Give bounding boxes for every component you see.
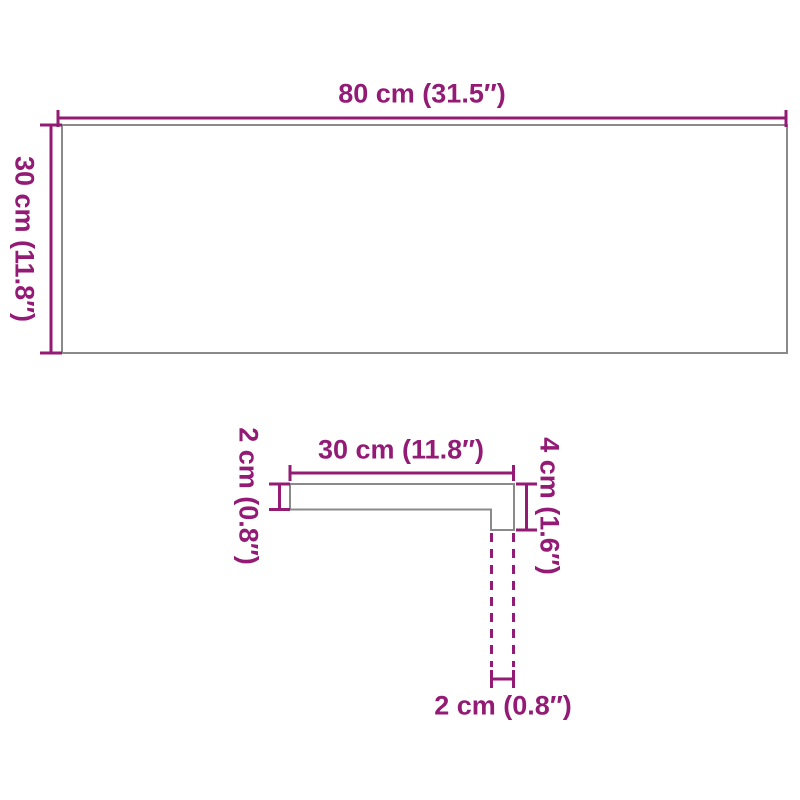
dimension-diagram: 80 cm (31.5″) 30 cm (11.8″) 30 cm (11.8″…: [0, 0, 800, 800]
top-panel-outline: [62, 125, 787, 353]
profile-nose-width-dimension-line: [492, 670, 514, 688]
top-height-dimension-line: [40, 125, 62, 353]
top-panel-width-label: 80 cm (31.5″): [338, 81, 506, 108]
profile-thickness-label: 2 cm (0.8″): [235, 427, 262, 565]
profile-nose-width-label: 2 cm (0.8″): [434, 693, 572, 720]
profile-outline: [290, 484, 514, 530]
profile-width-label: 30 cm (11.8″): [318, 437, 484, 464]
diagram-drawing: [0, 0, 800, 800]
profile-thickness-dimension-line: [269, 484, 290, 510]
profile-width-dimension-line: [290, 465, 514, 481]
top-panel-height-label: 30 cm (11.8″): [11, 156, 38, 322]
profile-nose-height-label: 4 cm (1.6″): [536, 437, 563, 575]
projection-dashed-lines: [492, 533, 514, 667]
